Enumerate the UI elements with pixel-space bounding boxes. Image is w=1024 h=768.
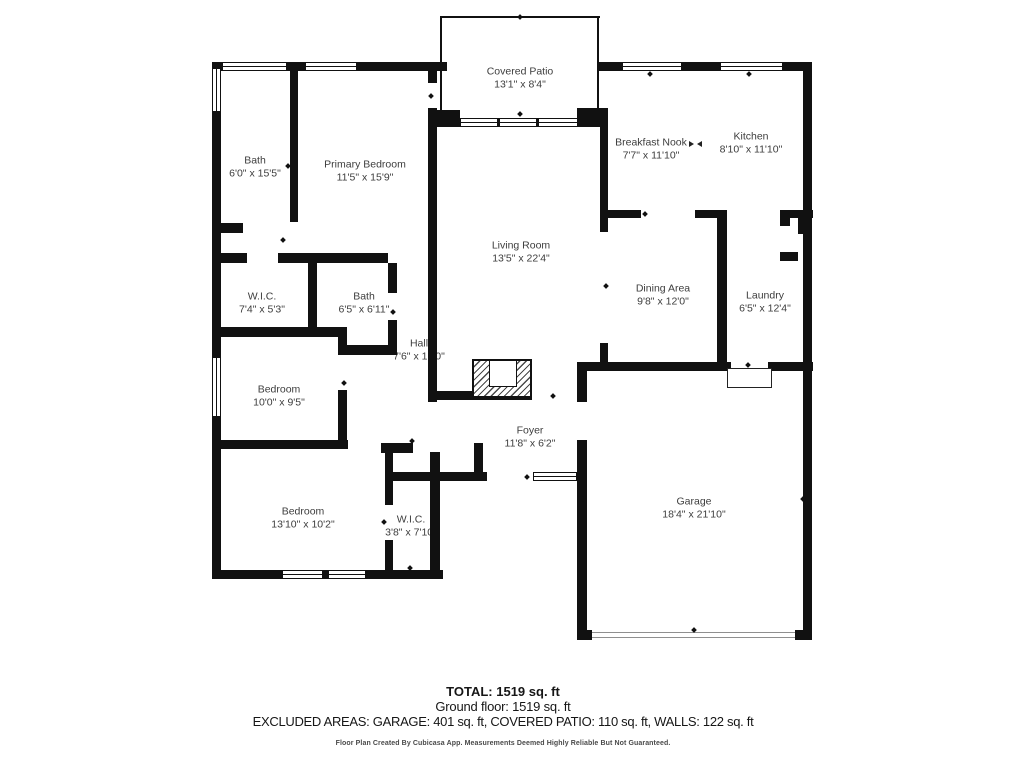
room-label-living-room: Living Room 13'5" x 22'4" [492,240,550,265]
wall-segment [278,253,388,263]
wall-segment [385,540,393,578]
door-tick [603,283,609,289]
room-dims: 8'10" x 11'10" [720,143,783,156]
wall-segment [212,327,347,337]
wall-segment [338,390,347,448]
window [328,570,366,579]
wall-segment [780,218,790,226]
room-dims: 7'6" x 15'0" [393,350,445,363]
window [222,62,287,71]
room-label-foyer: Foyer 11'8" x 6'2" [505,425,556,450]
room-label-covered-patio: Covered Patio 13'1" x 8'4" [487,66,554,91]
wall-segment [600,343,608,371]
room-dims: 13'5" x 22'4" [492,252,550,265]
room-dims: 18'4" x 21'10" [662,508,725,521]
room-label-bedroom-lower: Bedroom 13'10" x 10'2" [271,506,334,531]
door-tick [524,474,530,480]
utility-nook [727,368,772,388]
wall-segment [428,108,437,402]
room-label-wic-primary: W.I.C. 7'4" x 5'3" [239,291,285,316]
total-area-text: TOTAL: 1519 sq. ft [0,684,1006,699]
wall-segment [608,210,641,218]
wall-segment [218,223,243,233]
patio-sliding-door [460,118,578,127]
excluded-areas-text: EXCLUDED AREAS: GARAGE: 401 sq. ft, COVE… [0,714,1006,729]
wall-segment [388,263,397,293]
plan-summary: TOTAL: 1519 sq. ft Ground floor: 1519 sq… [0,684,1006,747]
room-name: Garage [662,496,725,509]
door-tick [550,393,556,399]
wall-segment [430,452,440,578]
room-name: Living Room [492,240,550,253]
wall-segment [577,108,608,127]
wall-segment [385,450,393,505]
room-dims: 6'5" x 6'11" [339,303,390,316]
room-label-hall: Hall 7'6" x 15'0" [393,338,445,363]
window [533,472,577,481]
wall-segment [600,127,608,232]
room-dims: 13'10" x 10'2" [271,518,334,531]
door-tick [280,237,286,243]
door-tick [428,93,434,99]
room-dims: 13'1" x 8'4" [487,78,554,91]
room-name: Laundry [739,290,791,303]
patio-wall [440,16,442,110]
room-dims: 6'5" x 12'4" [739,302,791,315]
window [305,62,357,71]
room-dims: 6'0" x 15'5" [229,167,281,180]
door-tick [390,309,396,315]
room-dims: 9'8" x 12'0" [636,295,690,308]
ground-floor-area-text: Ground floor: 1519 sq. ft [0,699,1006,714]
room-label-primary-bedroom: Primary Bedroom 11'5" x 15'9" [324,159,406,184]
room-label-breakfast-nook: Breakfast Nook 7'7" x 11'10" [615,137,687,162]
window [212,357,221,417]
window [212,68,221,112]
room-label-dining-area: Dining Area 9'8" x 12'0" [636,283,690,308]
room-name: Kitchen [720,131,783,144]
wall-segment [388,320,397,355]
door-tick [746,71,752,77]
door-tick [745,362,751,368]
wall-segment [717,210,727,363]
divider-arrow-icon [697,141,702,147]
room-name: Breakfast Nook [615,137,687,150]
window [720,62,783,71]
room-name: Bedroom [253,384,305,397]
patio-wall [597,16,599,108]
wall-segment [290,71,298,222]
floor-plan: Covered Patio 13'1" x 8'4" Bath 6'0" x 1… [0,0,1024,768]
window [282,570,323,579]
room-name: W.I.C. [239,291,285,304]
door-tick [517,111,523,117]
fireplace-firebox [489,360,517,387]
room-dims: 7'7" x 11'10" [615,149,687,162]
wall-segment [308,263,317,327]
wall-segment [435,110,460,127]
door-tick [642,211,648,217]
room-name: Primary Bedroom [324,159,406,172]
disclaimer-text: Floor Plan Created By Cubicasa App. Meas… [0,740,1006,747]
room-label-laundry: Laundry 6'5" x 12'4" [739,290,791,315]
sliding-door-divider [497,119,500,126]
room-label-bath-primary: Bath 6'0" x 15'5" [229,155,281,180]
room-dims: 11'8" x 6'2" [505,437,556,450]
room-dims: 10'0" x 9'5" [253,396,305,409]
room-label-garage: Garage 18'4" x 21'10" [662,496,725,521]
room-name: Bath [339,291,390,304]
wall-segment [577,362,587,402]
room-label-bedroom-middle: Bedroom 10'0" x 9'5" [253,384,305,409]
wall-segment [577,440,587,640]
door-tick [341,380,347,386]
wall-segment [780,252,798,261]
fireplace [472,359,532,398]
room-dims: 11'5" x 15'9" [324,171,406,184]
room-dims: 7'4" x 5'3" [239,303,285,316]
wall-segment [474,443,483,475]
room-name: Covered Patio [487,66,554,79]
wall-segment [212,440,348,449]
room-name: Bedroom [271,506,334,519]
window [622,62,682,71]
wall-segment [428,71,437,83]
room-name: Dining Area [636,283,690,296]
room-name: Bath [229,155,281,168]
door-tick [647,71,653,77]
wall-segment [798,218,807,234]
sliding-door-divider [536,119,539,126]
room-name: Hall [393,338,445,351]
room-label-kitchen: Kitchen 8'10" x 11'10" [720,131,783,156]
wall-segment [803,62,812,640]
room-label-bath-hall: Bath 6'5" x 6'11" [339,291,390,316]
room-name: Foyer [505,425,556,438]
wall-segment [212,62,221,578]
divider-arrow-icon [689,141,694,147]
wall-segment [338,327,347,353]
